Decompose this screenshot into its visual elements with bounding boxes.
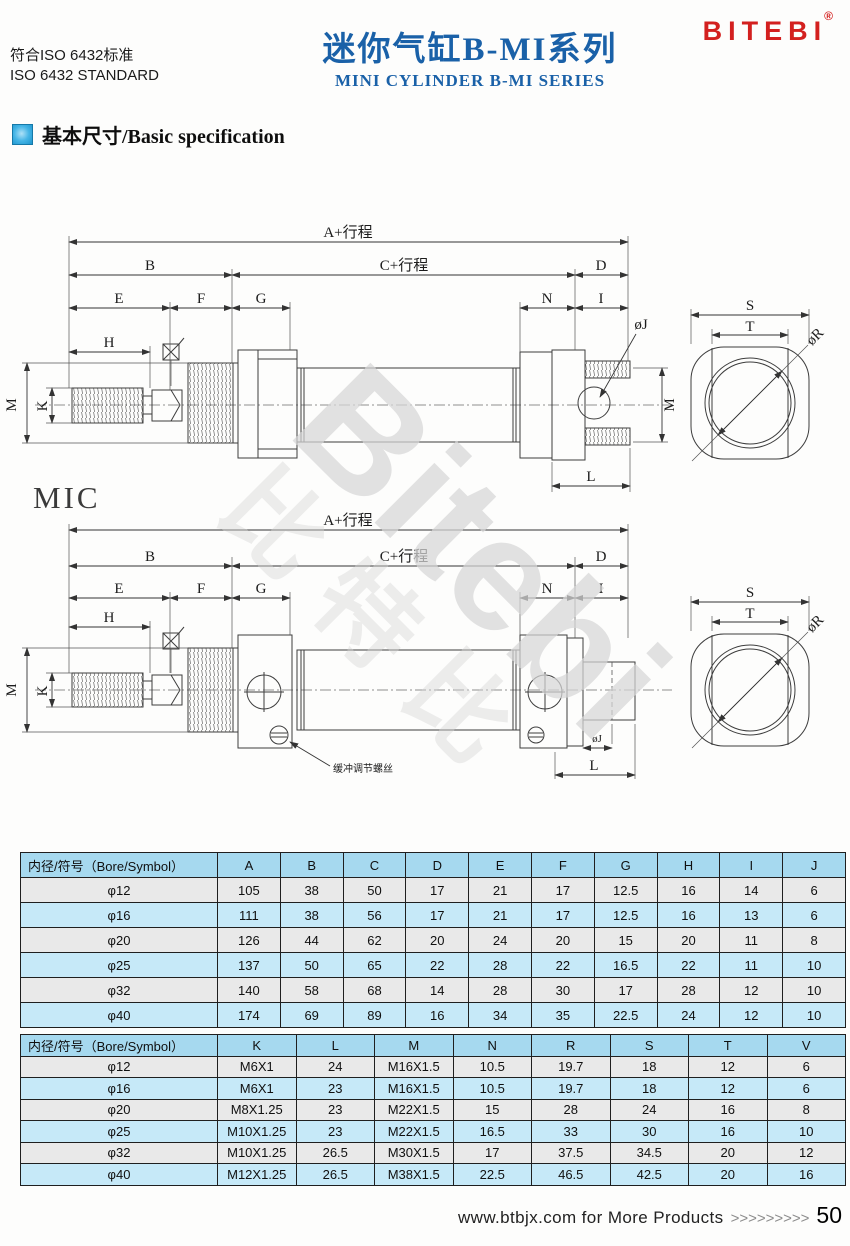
- table-cell: 20: [689, 1164, 768, 1186]
- column-header: E: [469, 853, 532, 878]
- column-header: T: [689, 1035, 768, 1057]
- table-cell: 38: [280, 903, 343, 928]
- table-cell: 8: [783, 928, 846, 953]
- dim-label: C+行程: [380, 257, 428, 274]
- table-cell: M10X1.25: [218, 1121, 297, 1143]
- table-cell: 174: [218, 1003, 281, 1028]
- end-view-2: S T øR: [691, 585, 827, 748]
- iso-standard-en: ISO 6432 STANDARD: [10, 66, 159, 86]
- page-title-en: MINI CYLINDER B-MI SERIES: [170, 71, 770, 91]
- table-cell: 15: [594, 928, 657, 953]
- dim-label: L: [589, 758, 598, 774]
- dim-label: øR: [804, 325, 828, 349]
- table-cell: 23: [296, 1121, 375, 1143]
- table-cell: 137: [218, 953, 281, 978]
- table-cell: 24: [296, 1056, 375, 1078]
- table-cell: φ40: [21, 1003, 218, 1028]
- table-cell: 16: [767, 1164, 846, 1186]
- table-cell: 11: [720, 953, 783, 978]
- table-row: φ25137506522282216.5221110: [21, 953, 846, 978]
- table-cell: 21: [469, 903, 532, 928]
- table-cell: M8X1.25: [218, 1099, 297, 1121]
- cushion-screw: [270, 726, 288, 744]
- table-cell: 28: [469, 953, 532, 978]
- dim-label: øJ: [634, 317, 648, 333]
- rod-thread: [72, 388, 143, 423]
- table-cell: 50: [280, 953, 343, 978]
- table-cell: M30X1.5: [375, 1142, 454, 1164]
- chevrons-icon: >>>>>>>>>: [731, 1210, 810, 1227]
- table-cell: φ20: [21, 1099, 218, 1121]
- table-cell: 18: [610, 1056, 689, 1078]
- dim-label: øR: [804, 612, 828, 636]
- table-cell: 22.5: [453, 1164, 532, 1186]
- table-row: φ40M12X1.2526.5M38X1.522.546.542.52016: [21, 1164, 846, 1186]
- table-cell: 16.5: [453, 1121, 532, 1143]
- gland-thread: [188, 648, 233, 732]
- dim-label: K: [35, 400, 51, 411]
- table-cell: 24: [610, 1099, 689, 1121]
- rod-thread: [72, 673, 143, 707]
- table-cell: 16: [406, 1003, 469, 1028]
- dim-label: S: [746, 298, 754, 314]
- column-header: H: [657, 853, 720, 878]
- table-cell: 12.5: [594, 878, 657, 903]
- table-cell: M22X1.5: [375, 1099, 454, 1121]
- column-header: F: [531, 853, 594, 878]
- table-cell: 30: [610, 1121, 689, 1143]
- table-cell: M10X1.25: [218, 1142, 297, 1164]
- table-cell: 34: [469, 1003, 532, 1028]
- column-header: A: [218, 853, 281, 878]
- table-row: φ20M8X1.2523M22X1.5152824168: [21, 1099, 846, 1121]
- table-row: φ12105385017211712.516146: [21, 878, 846, 903]
- table-cell: M38X1.5: [375, 1164, 454, 1186]
- table-cell: 20: [406, 928, 469, 953]
- column-header: I: [720, 853, 783, 878]
- basic-dimensions-table-1: 内径/符号（Bore/Symbol）ABCDEFGHIJφ12105385017…: [20, 852, 846, 1028]
- table-cell: 20: [531, 928, 594, 953]
- dim-label: T: [745, 606, 754, 622]
- column-header: 内径/符号（Bore/Symbol）: [21, 1035, 218, 1057]
- table-cell: 12: [767, 1142, 846, 1164]
- catalog-page: 符合ISO 6432标准 ISO 6432 STANDARD 迷你气缸B-MI系…: [0, 0, 850, 1246]
- table-cell: φ12: [21, 1056, 218, 1078]
- table-cell: φ25: [21, 953, 218, 978]
- cushion-screw-note: 缓冲调节螺丝: [333, 762, 393, 775]
- table-cell: 28: [657, 978, 720, 1003]
- section-heading-text: 基本尺寸/Basic specification: [42, 120, 285, 149]
- column-header: V: [767, 1035, 846, 1057]
- table-cell: 26.5: [296, 1164, 375, 1186]
- table-cell: 56: [343, 903, 406, 928]
- table-cell: 23: [296, 1099, 375, 1121]
- dim-label: S: [746, 585, 754, 601]
- brand-text: BITEBI: [703, 16, 828, 46]
- table-row: φ32140586814283017281210: [21, 978, 846, 1003]
- dim-label: M: [4, 683, 20, 696]
- dim-label: A+行程: [323, 224, 372, 241]
- column-header: N: [453, 1035, 532, 1057]
- dim-label: H: [104, 610, 115, 626]
- column-header: S: [610, 1035, 689, 1057]
- rear-eye-hole: [578, 387, 610, 419]
- table-cell: 10: [767, 1121, 846, 1143]
- table-cell: 23: [296, 1078, 375, 1100]
- dim-label: F: [197, 291, 205, 307]
- table-cell: 6: [767, 1056, 846, 1078]
- dim-label: L: [586, 469, 595, 485]
- rod-nut: [152, 390, 182, 421]
- table-cell: 19.7: [532, 1056, 611, 1078]
- table-cell: 11: [720, 928, 783, 953]
- dim-label: E: [114, 581, 123, 597]
- dim-label: G: [256, 291, 267, 307]
- table-cell: 16.5: [594, 953, 657, 978]
- iso-standard-cn: 符合ISO 6432标准: [10, 46, 159, 66]
- footer-website: www.btbjx.com for More Products: [458, 1208, 724, 1228]
- table-cell: 126: [218, 928, 281, 953]
- table-cell: 35: [531, 1003, 594, 1028]
- table-cell: 20: [657, 928, 720, 953]
- brand-logo: BITEBI®: [703, 16, 836, 47]
- table-cell: 140: [218, 978, 281, 1003]
- page-number: 50: [816, 1202, 842, 1229]
- table-cell: 16: [689, 1099, 768, 1121]
- table-cell: 20: [689, 1142, 768, 1164]
- column-header: D: [406, 853, 469, 878]
- table-cell: 17: [531, 878, 594, 903]
- basic-dimensions-table-2: 内径/符号（Bore/Symbol）KLMNRSTVφ12M6X124M16X1…: [20, 1034, 846, 1186]
- table-row: φ16111385617211712.516136: [21, 903, 846, 928]
- table-header-row: 内径/符号（Bore/Symbol）KLMNRSTV: [21, 1035, 846, 1057]
- port-symbol-icon: [163, 338, 184, 360]
- dim-label: H: [104, 335, 115, 351]
- table-cell: 46.5: [532, 1164, 611, 1186]
- table-cell: M6X1: [218, 1056, 297, 1078]
- table-cell: 37.5: [532, 1142, 611, 1164]
- column-header: J: [783, 853, 846, 878]
- table-cell: 18: [610, 1078, 689, 1100]
- table-cell: 12: [720, 978, 783, 1003]
- table-cell: 62: [343, 928, 406, 953]
- rear-stud-top: [585, 361, 630, 378]
- table-cell: 28: [532, 1099, 611, 1121]
- table-cell: φ40: [21, 1164, 218, 1186]
- column-header: B: [280, 853, 343, 878]
- page-title: 迷你气缸B-MI系列 MINI CYLINDER B-MI SERIES: [170, 22, 770, 91]
- table-cell: 14: [406, 978, 469, 1003]
- table-cell: 22: [531, 953, 594, 978]
- table-cell: φ12: [21, 878, 218, 903]
- table-cell: 16: [689, 1121, 768, 1143]
- blue-square-icon: [12, 124, 33, 145]
- table-cell: 14: [720, 878, 783, 903]
- column-header: R: [532, 1035, 611, 1057]
- table-cell: 8: [767, 1099, 846, 1121]
- table-cell: M22X1.5: [375, 1121, 454, 1143]
- table-cell: 24: [657, 1003, 720, 1028]
- column-header: K: [218, 1035, 297, 1057]
- table-cell: 6: [783, 878, 846, 903]
- table-cell: 15: [453, 1099, 532, 1121]
- table-row: φ2012644622024201520118: [21, 928, 846, 953]
- port-symbol-icon: [163, 627, 184, 649]
- dim-label: N: [542, 291, 553, 307]
- table-cell: 12: [689, 1056, 768, 1078]
- table-cell: 22: [657, 953, 720, 978]
- dim-label: E: [114, 291, 123, 307]
- table-cell: 111: [218, 903, 281, 928]
- table-cell: M6X1: [218, 1078, 297, 1100]
- table-cell: 17: [406, 878, 469, 903]
- table-cell: φ16: [21, 903, 218, 928]
- table-cell: 24: [469, 928, 532, 953]
- table-cell: 26.5: [296, 1142, 375, 1164]
- page-footer: www.btbjx.com for More Products >>>>>>>>…: [458, 1202, 842, 1229]
- table-cell: 10: [783, 1003, 846, 1028]
- dim-label: I: [599, 291, 604, 307]
- table-row: φ32M10X1.2526.5M30X1.51737.534.52012: [21, 1142, 846, 1164]
- table-cell: 22.5: [594, 1003, 657, 1028]
- table-cell: 69: [280, 1003, 343, 1028]
- table-cell: 17: [453, 1142, 532, 1164]
- table-cell: 58: [280, 978, 343, 1003]
- table-cell: 30: [531, 978, 594, 1003]
- table-cell: 44: [280, 928, 343, 953]
- end-view-1: S T øR: [691, 298, 827, 461]
- table-cell: 34.5: [610, 1142, 689, 1164]
- dim-label: K: [35, 685, 51, 696]
- column-header: 内径/符号（Bore/Symbol）: [21, 853, 218, 878]
- dim-label: M: [4, 398, 20, 411]
- table-cell: 89: [343, 1003, 406, 1028]
- table-cell: M12X1.25: [218, 1164, 297, 1186]
- table-cell: 33: [532, 1121, 611, 1143]
- table-cell: 19.7: [532, 1078, 611, 1100]
- table-cell: 68: [343, 978, 406, 1003]
- column-header: C: [343, 853, 406, 878]
- table-cell: 10.5: [453, 1056, 532, 1078]
- technical-drawings: A+行程 B C+行程 D E F G N I H øJ M K M L: [0, 178, 850, 838]
- table-cell: 38: [280, 878, 343, 903]
- model-label: MIC: [33, 480, 101, 515]
- table-cell: 12: [720, 1003, 783, 1028]
- dim-label: F: [197, 581, 205, 597]
- table-cell: 17: [531, 903, 594, 928]
- table-row: φ12M6X124M16X1.510.519.718126: [21, 1056, 846, 1078]
- table-cell: M16X1.5: [375, 1078, 454, 1100]
- column-header: L: [296, 1035, 375, 1057]
- table-cell: φ32: [21, 1142, 218, 1164]
- column-header: M: [375, 1035, 454, 1057]
- table-row: φ16M6X123M16X1.510.519.718126: [21, 1078, 846, 1100]
- table-cell: 10: [783, 953, 846, 978]
- table-cell: 22: [406, 953, 469, 978]
- table-cell: φ25: [21, 1121, 218, 1143]
- dim-label: M: [662, 398, 678, 411]
- table-cell: M16X1.5: [375, 1056, 454, 1078]
- table-cell: 10.5: [453, 1078, 532, 1100]
- dim-label: B: [145, 549, 155, 565]
- table-cell: φ32: [21, 978, 218, 1003]
- table-cell: φ20: [21, 928, 218, 953]
- table-cell: 105: [218, 878, 281, 903]
- registered-trademark-icon: ®: [824, 9, 833, 23]
- table-cell: φ16: [21, 1078, 218, 1100]
- iso-standard-note: 符合ISO 6432标准 ISO 6432 STANDARD: [10, 46, 159, 86]
- spec-table: 内径/符号（Bore/Symbol）KLMNRSTVφ12M6X124M16X1…: [20, 1034, 846, 1186]
- rear-stud-bottom: [585, 428, 630, 445]
- table-cell: 21: [469, 878, 532, 903]
- dim-label: T: [745, 319, 754, 335]
- table-header-row: 内径/符号（Bore/Symbol）ABCDEFGHIJ: [21, 853, 846, 878]
- page-title-cn: 迷你气缸B-MI系列: [170, 22, 770, 70]
- table-row: φ40174698916343522.5241210: [21, 1003, 846, 1028]
- section-heading: 基本尺寸/Basic specification: [12, 120, 285, 149]
- dim-label: B: [145, 258, 155, 274]
- table-cell: 12: [689, 1078, 768, 1100]
- table-cell: 6: [783, 903, 846, 928]
- gland-thread: [188, 363, 233, 443]
- spec-table: 内径/符号（Bore/Symbol）ABCDEFGHIJφ12105385017…: [20, 852, 846, 1028]
- table-cell: 10: [783, 978, 846, 1003]
- table-cell: 16: [657, 903, 720, 928]
- table-cell: 17: [594, 978, 657, 1003]
- table-cell: 16: [657, 878, 720, 903]
- table-cell: 12.5: [594, 903, 657, 928]
- dim-label: D: [596, 258, 607, 274]
- table-row: φ25M10X1.2523M22X1.516.533301610: [21, 1121, 846, 1143]
- table-cell: 28: [469, 978, 532, 1003]
- table-cell: 42.5: [610, 1164, 689, 1186]
- table-cell: 6: [767, 1078, 846, 1100]
- column-header: G: [594, 853, 657, 878]
- table-cell: 50: [343, 878, 406, 903]
- table-cell: 13: [720, 903, 783, 928]
- table-cell: 65: [343, 953, 406, 978]
- table-cell: 17: [406, 903, 469, 928]
